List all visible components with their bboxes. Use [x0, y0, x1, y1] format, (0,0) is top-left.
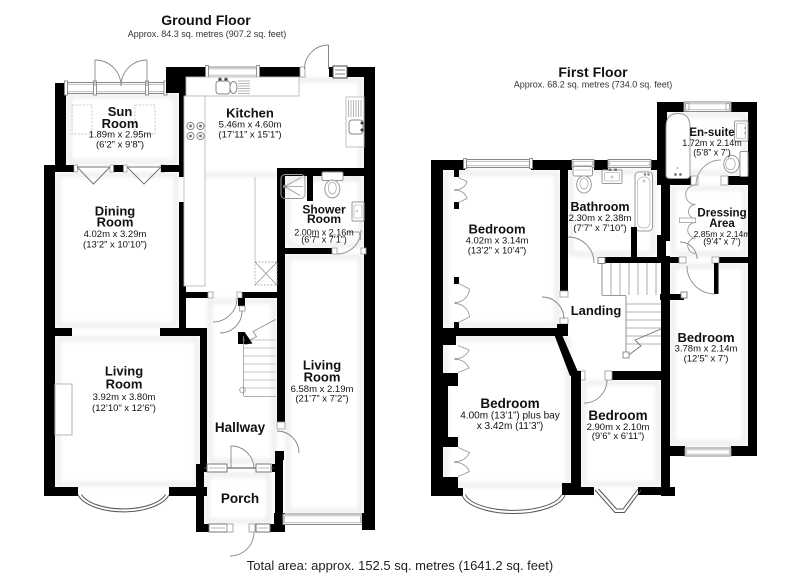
svg-text:Bedroom: Bedroom [480, 396, 539, 411]
svg-text:(5’8” x 7’): (5’8” x 7’) [693, 148, 731, 158]
svg-text:(17’11” x 15’1”): (17’11” x 15’1”) [218, 130, 281, 141]
svg-text:Room: Room [307, 212, 341, 226]
svg-text:Approx. 68.2 sq. metres (734.0: Approx. 68.2 sq. metres (734.0 sq. feet) [514, 80, 673, 90]
svg-text:1.72m x 2.14m: 1.72m x 2.14m [682, 138, 742, 148]
svg-text:Approx. 84.3 sq. metres (907.2: Approx. 84.3 sq. metres (907.2 sq. feet) [128, 29, 287, 39]
svg-text:(7’7” x 7’10”): (7’7” x 7’10”) [573, 223, 626, 234]
svg-text:Room: Room [304, 370, 341, 385]
svg-text:Bedroom: Bedroom [588, 408, 647, 423]
svg-text:Landing: Landing [571, 303, 622, 318]
svg-text:(9’6” x 6’11”): (9’6” x 6’11”) [592, 431, 645, 442]
svg-text:(13’2” x 10’4”): (13’2” x 10’4”) [468, 246, 527, 257]
svg-text:Room: Room [106, 377, 143, 392]
svg-text:Porch: Porch [221, 491, 259, 506]
svg-text:3.92m x 3.80m: 3.92m x 3.80m [93, 392, 156, 403]
svg-text:(6’2” x 9’8”): (6’2” x 9’8”) [96, 140, 144, 151]
svg-text:Hallway: Hallway [215, 420, 266, 435]
svg-text:Room: Room [97, 215, 134, 230]
svg-text:Total area: approx. 152.5 sq.: Total area: approx. 152.5 sq. metres (16… [247, 558, 553, 573]
svg-text:(9’4” x 7’): (9’4” x 7’) [703, 237, 741, 247]
svg-text:(12’5” x 7’): (12’5” x 7’) [684, 354, 729, 365]
svg-text:4.02m x 3.29m: 4.02m x 3.29m [84, 229, 147, 240]
svg-text:Bathroom: Bathroom [570, 200, 629, 214]
svg-text:First Floor: First Floor [558, 64, 628, 80]
svg-text:x 3.42m (11’3”): x 3.42m (11’3”) [477, 421, 544, 432]
svg-text:Bedroom: Bedroom [468, 222, 525, 237]
svg-text:(21’7” x 7’2”): (21’7” x 7’2”) [295, 394, 348, 405]
svg-text:(6’7” x 7’1”): (6’7” x 7’1”) [301, 235, 347, 245]
svg-text:4.00m (13’1”) plus bay: 4.00m (13’1”) plus bay [460, 411, 560, 422]
svg-text:(12’10” x 12’6”): (12’10” x 12’6”) [92, 403, 156, 414]
svg-text:Kitchen: Kitchen [226, 106, 274, 121]
svg-text:(13’2” x 10’10”): (13’2” x 10’10”) [83, 240, 147, 251]
svg-text:Ground Floor: Ground Floor [161, 12, 251, 28]
